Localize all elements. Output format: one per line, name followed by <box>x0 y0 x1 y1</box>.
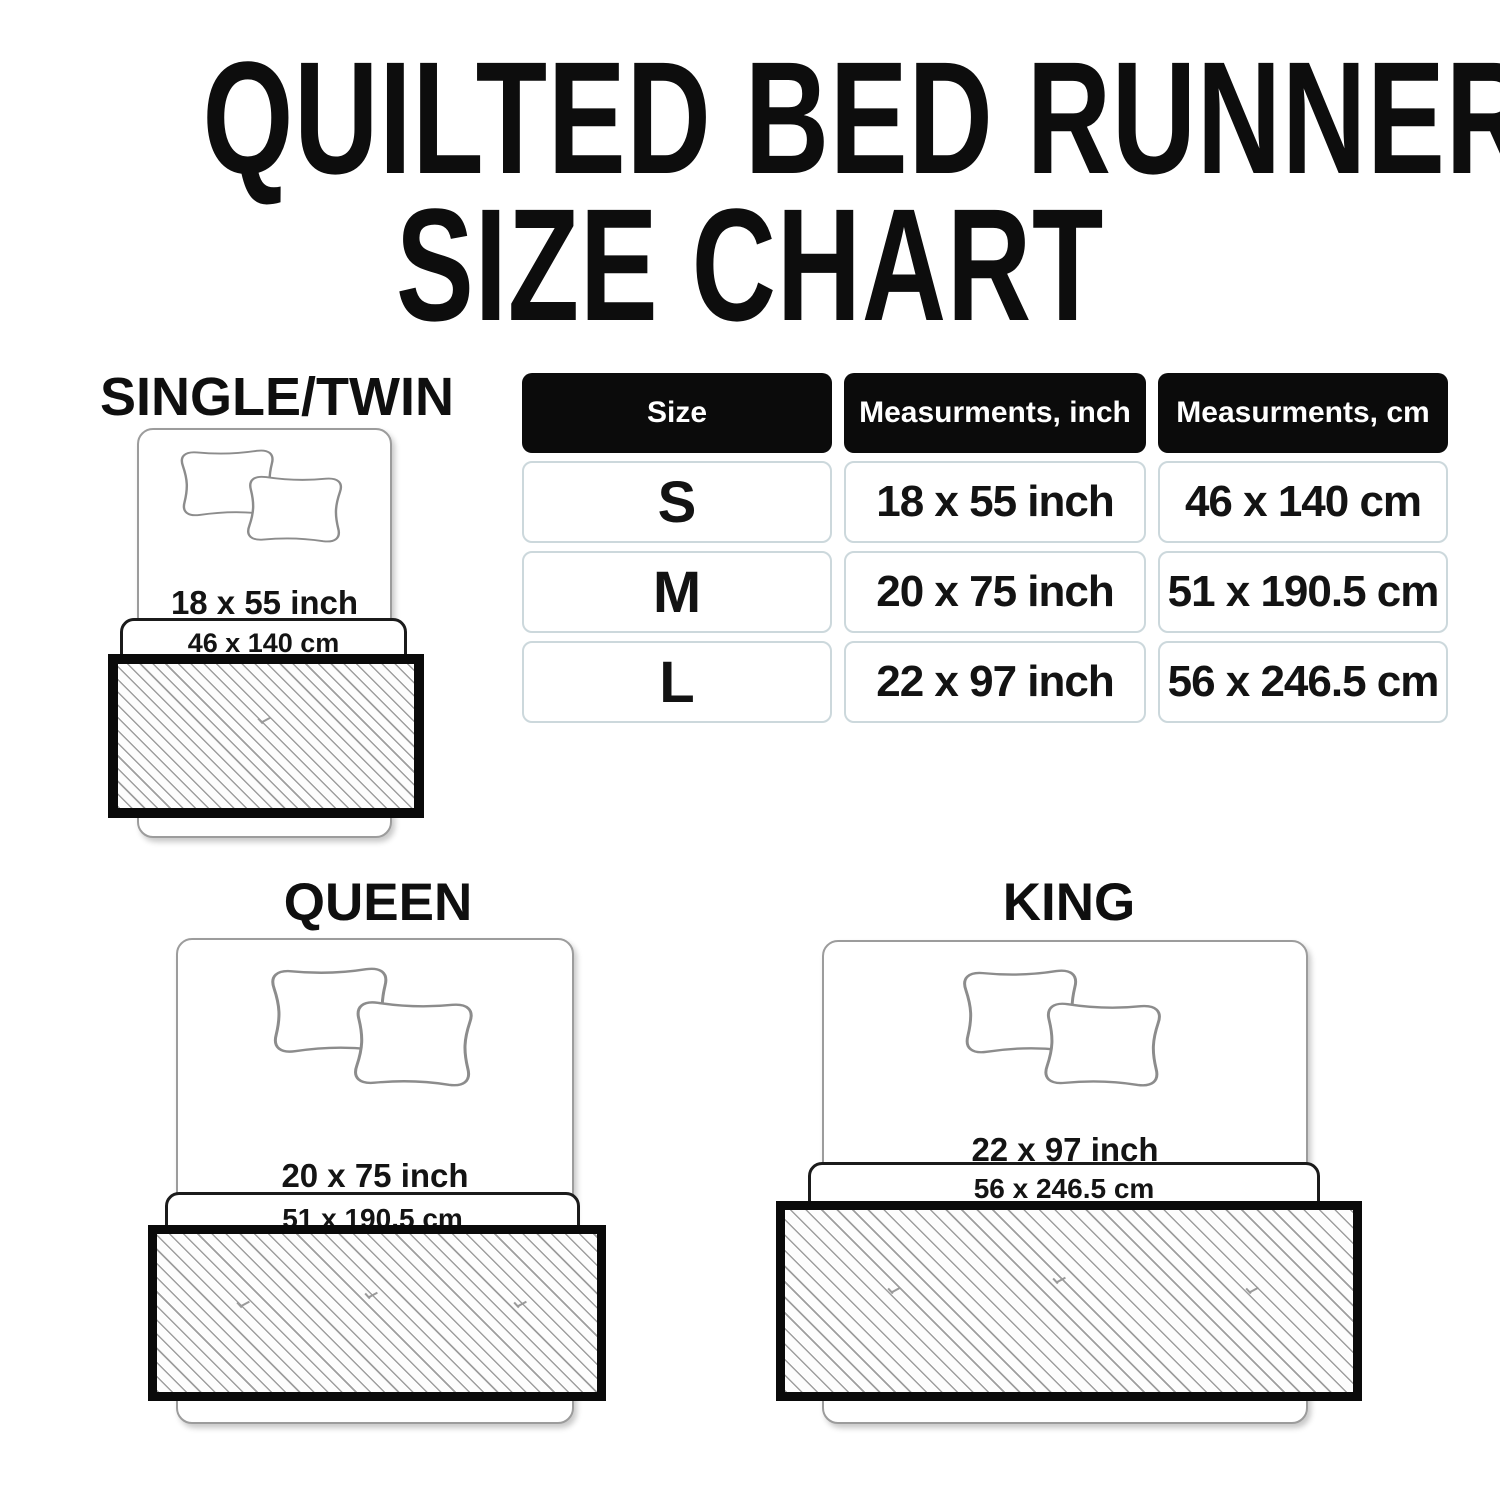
table-cell-cm-s: 46 x 140 cm <box>1158 461 1448 543</box>
table-cell-size-l: L <box>522 641 832 723</box>
bed-runner-swatch <box>148 1225 606 1401</box>
stitch-mark <box>364 1291 378 1300</box>
table-cell-cm-m: 51 x 190.5 cm <box>1158 551 1448 633</box>
table-header-inch: Measurments, inch <box>844 373 1146 453</box>
stitch-mark <box>236 1300 250 1309</box>
pillow-icon <box>1045 1003 1159 1085</box>
pillows-illustration <box>955 965 1173 1091</box>
diagram-label: KING <box>776 872 1362 933</box>
diagram-label: QUEEN <box>148 872 608 933</box>
bed-runner-swatch <box>776 1201 1362 1401</box>
diagram-queen: QUEEN 20 x 75 inch 51 x 190.5 cm <box>148 870 608 1450</box>
pillow-icon <box>248 476 341 541</box>
table-cell-inch-s: 18 x 55 inch <box>844 461 1146 543</box>
stitch-mark <box>513 1300 527 1309</box>
stitch-mark <box>257 716 271 725</box>
pillow-icon <box>355 1002 472 1086</box>
table-cell-inch-m: 20 x 75 inch <box>844 551 1146 633</box>
table-header-cm: Measurments, cm <box>1158 373 1448 453</box>
size-table: Size Measurments, inch Measurments, cm S… <box>522 373 1448 723</box>
diagram-single-twin: SINGLE/TWIN 18 x 55 inch 46 x 140 cm <box>100 366 435 866</box>
bed-runner-swatch <box>108 654 424 818</box>
cm-dimension-label: 56 x 246.5 cm <box>974 1173 1155 1204</box>
diagram-king: KING 22 x 97 inch 56 x 246.5 cm <box>776 870 1362 1450</box>
title-line-1: QUILTED BED RUNNER <box>203 44 1298 191</box>
inch-dimension-label: 18 x 55 inch <box>137 584 392 622</box>
diagram-label: SINGLE/TWIN <box>100 366 435 428</box>
stitch-mark <box>1245 1286 1259 1295</box>
inch-dimension-label: 20 x 75 inch <box>176 1157 574 1195</box>
table-cell-size-s: S <box>522 461 832 543</box>
stitch-mark <box>1052 1276 1066 1285</box>
page-title: QUILTED BED RUNNER SIZE CHART <box>203 44 1298 338</box>
stitch-mark <box>887 1286 901 1295</box>
pillows-illustration <box>174 446 352 546</box>
size-chart-canvas: QUILTED BED RUNNER SIZE CHART Size Measu… <box>0 0 1500 1500</box>
table-cell-size-m: M <box>522 551 832 633</box>
pillows-illustration <box>263 963 485 1091</box>
table-cell-inch-l: 22 x 97 inch <box>844 641 1146 723</box>
title-line-2: SIZE CHART <box>203 191 1298 338</box>
table-header-size: Size <box>522 373 832 453</box>
table-cell-cm-l: 56 x 246.5 cm <box>1158 641 1448 723</box>
